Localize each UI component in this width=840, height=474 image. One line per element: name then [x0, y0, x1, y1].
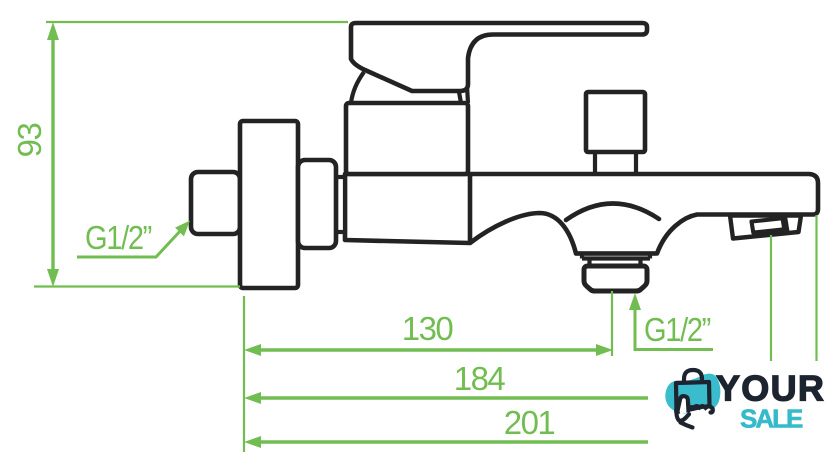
svg-text:201: 201: [504, 404, 555, 441]
svg-text:184: 184: [454, 360, 506, 397]
svg-text:G1/2”: G1/2”: [644, 311, 711, 348]
svg-text:93: 93: [11, 124, 48, 158]
svg-text:YOUR: YOUR: [716, 368, 825, 409]
svg-text:SALE: SALE: [740, 404, 803, 434]
svg-text:130: 130: [402, 310, 454, 347]
svg-text:G1/2”: G1/2”: [85, 219, 152, 256]
